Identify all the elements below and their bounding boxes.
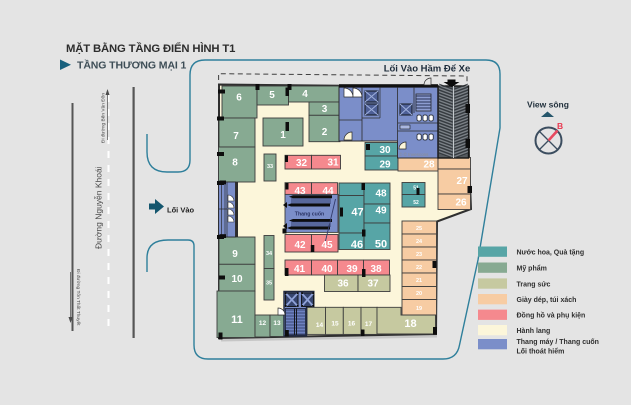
svg-text:48: 48 xyxy=(375,189,387,200)
svg-text:10: 10 xyxy=(231,274,243,285)
svg-text:30: 30 xyxy=(379,145,391,156)
svg-text:Nước hoa, Quà tặng: Nước hoa, Quà tặng xyxy=(517,250,585,257)
svg-text:47: 47 xyxy=(351,207,363,219)
svg-text:31: 31 xyxy=(327,158,339,169)
svg-text:13: 13 xyxy=(273,320,281,327)
svg-text:Hành lang: Hành lang xyxy=(517,328,551,335)
svg-text:32: 32 xyxy=(296,158,308,169)
svg-text:View sông: View sông xyxy=(527,100,569,110)
svg-text:23: 23 xyxy=(416,252,422,258)
svg-text:41: 41 xyxy=(294,264,306,275)
svg-text:Thang máy / Thang cuốn: Thang máy / Thang cuốn xyxy=(517,338,599,346)
svg-text:9: 9 xyxy=(232,249,238,260)
svg-text:© © Invescons: © © Invescons xyxy=(399,151,429,157)
svg-text:Lối Vào: Lối Vào xyxy=(167,206,195,215)
svg-text:37: 37 xyxy=(367,279,379,290)
svg-text:35: 35 xyxy=(266,281,272,287)
svg-text:TẦNG THƯƠNG MẠI 1: TẦNG THƯƠNG MẠI 1 xyxy=(77,59,187,72)
svg-text:36: 36 xyxy=(337,279,349,290)
svg-text:29: 29 xyxy=(379,160,391,171)
svg-text:7: 7 xyxy=(233,131,239,142)
svg-text:39: 39 xyxy=(346,264,358,275)
svg-text:3: 3 xyxy=(322,104,328,115)
svg-text:Đi đường Tôn Thất Thuyết: Đi đường Tôn Thất Thuyết xyxy=(75,269,81,326)
svg-text:15: 15 xyxy=(331,321,339,328)
svg-text:Đi đường Bến Vân Đồn: Đi đường Bến Vân Đồn xyxy=(101,93,107,143)
svg-text:25: 25 xyxy=(416,226,422,232)
svg-text:MẶT BẰNG TẦNG ĐIỂN HÌNH T1: MẶT BẰNG TẦNG ĐIỂN HÌNH T1 xyxy=(66,42,235,55)
svg-text:45: 45 xyxy=(321,240,333,251)
svg-text:27: 27 xyxy=(456,176,468,187)
svg-text:50: 50 xyxy=(375,239,387,251)
svg-text:11: 11 xyxy=(231,314,243,326)
svg-text:14: 14 xyxy=(316,322,324,329)
svg-text:1: 1 xyxy=(280,130,286,141)
svg-text:52: 52 xyxy=(413,200,419,206)
svg-text:B: B xyxy=(557,121,563,131)
svg-text:Mỹ phẩm: Mỹ phẩm xyxy=(517,265,547,273)
svg-text:40: 40 xyxy=(321,264,333,275)
svg-text:46: 46 xyxy=(351,239,363,251)
svg-text:Trang sức: Trang sức xyxy=(517,281,551,288)
svg-text:4: 4 xyxy=(302,89,308,100)
svg-text:18: 18 xyxy=(404,318,416,330)
svg-text:Đồng hồ và phụ kiện: Đồng hồ và phụ kiện xyxy=(517,311,586,320)
svg-text:21: 21 xyxy=(416,278,422,284)
svg-text:12: 12 xyxy=(259,320,267,327)
svg-text:Thang cuốn: Thang cuốn xyxy=(295,211,324,218)
svg-text:6: 6 xyxy=(236,93,242,104)
svg-text:38: 38 xyxy=(370,264,382,275)
svg-text:19: 19 xyxy=(416,306,422,312)
svg-text:49: 49 xyxy=(375,206,387,217)
svg-text:Lối thoát hiểm: Lối thoát hiểm xyxy=(517,348,565,356)
svg-text:26: 26 xyxy=(455,198,467,209)
svg-text:22: 22 xyxy=(416,265,422,271)
svg-text:2: 2 xyxy=(322,127,328,138)
svg-text:24: 24 xyxy=(416,239,423,245)
svg-text:5: 5 xyxy=(269,90,275,101)
svg-text:Đường Nguyễn Khoái: Đường Nguyễn Khoái xyxy=(94,166,104,249)
svg-text:16: 16 xyxy=(348,321,356,328)
svg-text:Giày dép, túi xách: Giày dép, túi xách xyxy=(517,297,577,304)
svg-text:28: 28 xyxy=(423,160,435,171)
svg-text:17: 17 xyxy=(365,321,373,328)
svg-text:8: 8 xyxy=(232,158,238,169)
svg-text:42: 42 xyxy=(294,240,306,251)
svg-text:Lối Vào Hầm Để Xe: Lối Vào Hầm Để Xe xyxy=(384,64,471,75)
svg-text:33: 33 xyxy=(267,164,273,170)
svg-text:20: 20 xyxy=(416,291,422,297)
svg-text:34: 34 xyxy=(266,251,273,257)
